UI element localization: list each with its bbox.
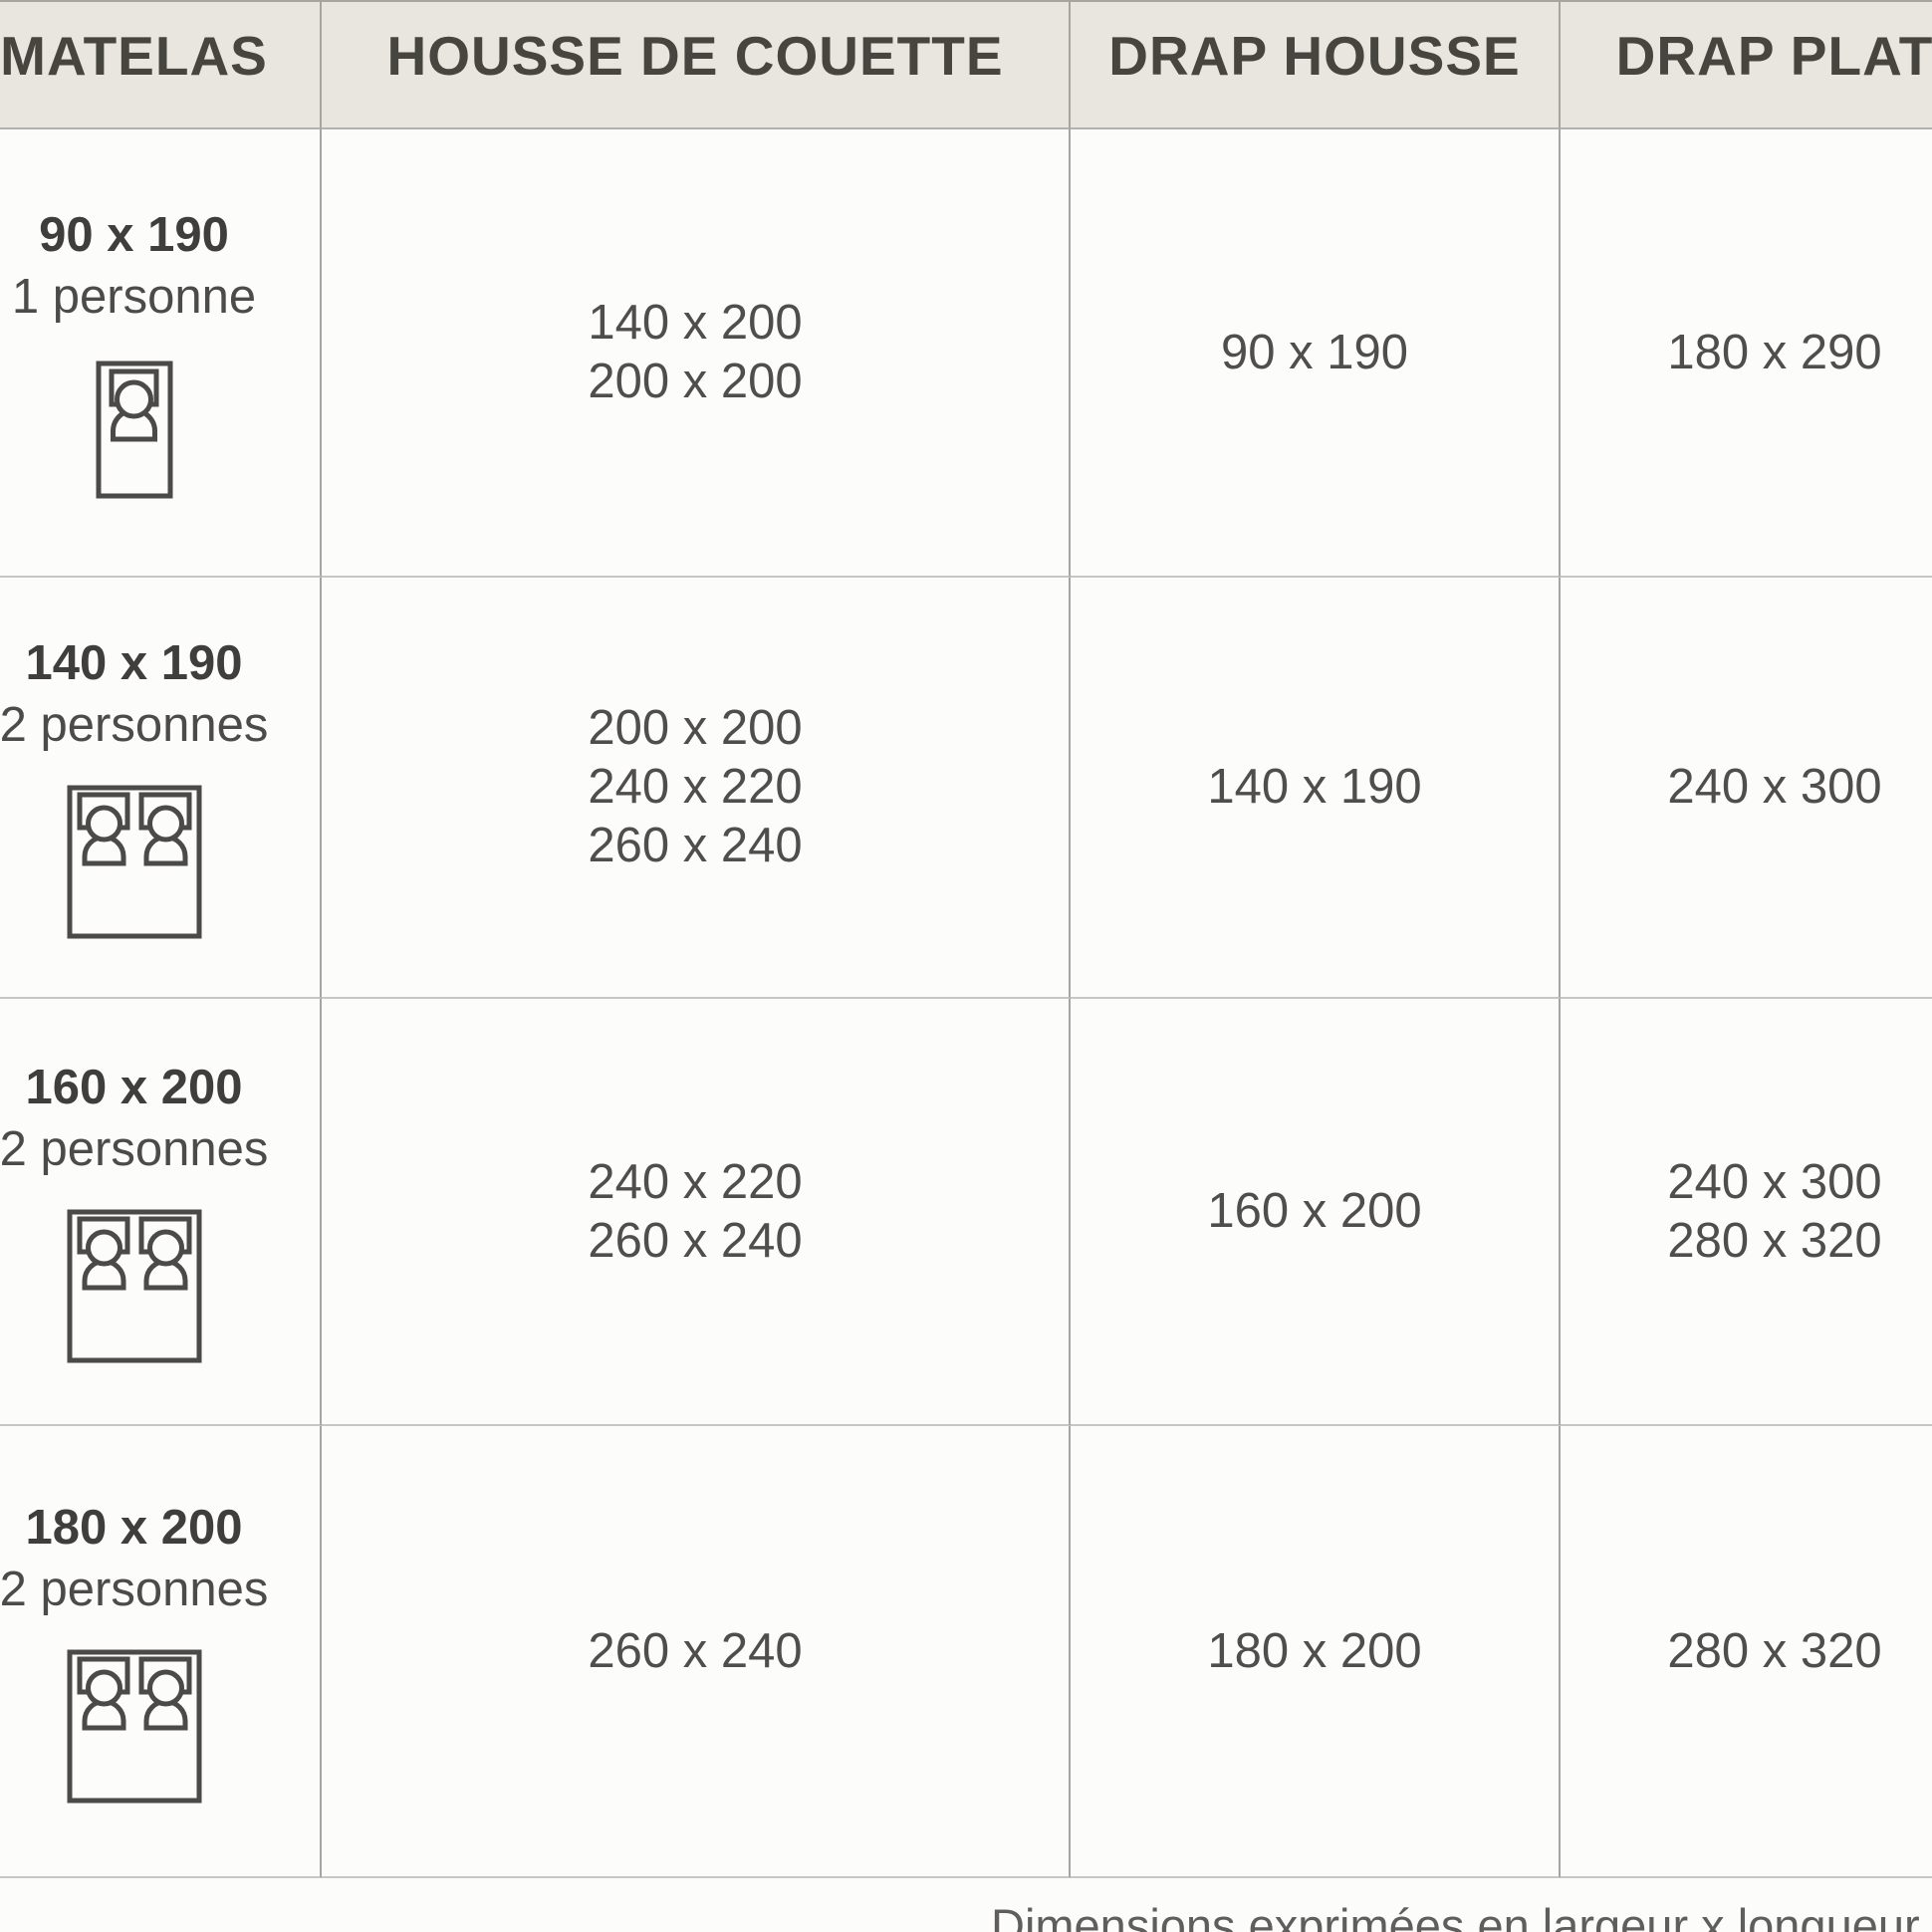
single-bed-icon [96, 361, 173, 499]
size-value: 240 x 300 [1667, 758, 1881, 817]
drap-housse-cell: 160 x 200 [1071, 999, 1561, 1426]
housse-de-couette-cell: 260 x 240 [322, 1426, 1071, 1878]
matelas-cell: 90 x 190 1 personne [0, 129, 322, 578]
drap-plat-cell: 240 x 300 [1561, 578, 1932, 999]
size-guide-page: MATELAS HOUSSE DE COUETTE DRAP HOUSSE DR… [0, 0, 1932, 1932]
drap-housse-cell: 90 x 190 [1071, 129, 1561, 578]
size-value: 260 x 240 [588, 1212, 802, 1271]
matelas-size: 140 x 190 [26, 635, 243, 691]
header-drap-plat-label: DRAP PLAT [1616, 24, 1932, 88]
header-drap-plat: DRAP PLAT [1561, 0, 1932, 129]
matelas-size: 160 x 200 [26, 1060, 243, 1115]
matelas-persons: 1 personne [12, 269, 256, 325]
matelas-persons: 2 personnes [0, 1562, 268, 1617]
double-bed-icon [67, 1649, 202, 1804]
header-matelas-label: MATELAS [0, 24, 268, 88]
matelas-size: 90 x 190 [39, 207, 229, 263]
header-drap-housse-label: DRAP HOUSSE [1108, 24, 1520, 88]
size-value: 240 x 220 [588, 758, 802, 817]
matelas-cell: 180 x 200 2 personnes [0, 1426, 322, 1878]
header-housse-de-couette: HOUSSE DE COUETTE [322, 0, 1071, 129]
housse-de-couette-cell: 140 x 200 200 x 200 [322, 129, 1071, 578]
size-value: 140 x 190 [1207, 758, 1421, 817]
size-value: 180 x 290 [1667, 324, 1881, 382]
size-value: 160 x 200 [1207, 1182, 1421, 1241]
header-matelas: MATELAS [0, 0, 322, 129]
size-value: 200 x 200 [588, 353, 802, 411]
matelas-cell: 140 x 190 2 personnes [0, 578, 322, 999]
double-bed-icon [67, 785, 202, 939]
drap-plat-cell: 280 x 320 [1561, 1426, 1932, 1878]
size-guide-table: MATELAS HOUSSE DE COUETTE DRAP HOUSSE DR… [0, 0, 1932, 1878]
housse-de-couette-cell: 240 x 220 260 x 240 [322, 999, 1071, 1426]
size-value: 200 x 200 [588, 699, 802, 758]
size-value: 180 x 200 [1207, 1622, 1421, 1681]
dimensions-note: Dimensions exprimées en largeur x longue… [991, 1898, 1932, 1932]
header-drap-housse: DRAP HOUSSE [1071, 0, 1561, 129]
header-housse-de-couette-label: HOUSSE DE COUETTE [386, 24, 1003, 88]
size-value: 280 x 320 [1667, 1212, 1881, 1271]
drap-plat-cell: 180 x 290 [1561, 129, 1932, 578]
drap-housse-cell: 140 x 190 [1071, 578, 1561, 999]
drap-housse-cell: 180 x 200 [1071, 1426, 1561, 1878]
size-value: 90 x 190 [1221, 324, 1408, 382]
housse-de-couette-cell: 200 x 200 240 x 220 260 x 240 [322, 578, 1071, 999]
matelas-persons: 2 personnes [0, 697, 268, 753]
size-value: 280 x 320 [1667, 1622, 1881, 1681]
size-value: 240 x 220 [588, 1153, 802, 1212]
size-value: 260 x 240 [588, 817, 802, 875]
matelas-size: 180 x 200 [26, 1500, 243, 1556]
size-value: 240 x 300 [1667, 1153, 1881, 1212]
matelas-cell: 160 x 200 2 personnes [0, 999, 322, 1426]
size-value: 260 x 240 [588, 1622, 802, 1681]
matelas-persons: 2 personnes [0, 1121, 268, 1177]
drap-plat-cell: 240 x 300 280 x 320 [1561, 999, 1932, 1426]
double-bed-icon [67, 1209, 202, 1363]
size-value: 140 x 200 [588, 294, 802, 353]
